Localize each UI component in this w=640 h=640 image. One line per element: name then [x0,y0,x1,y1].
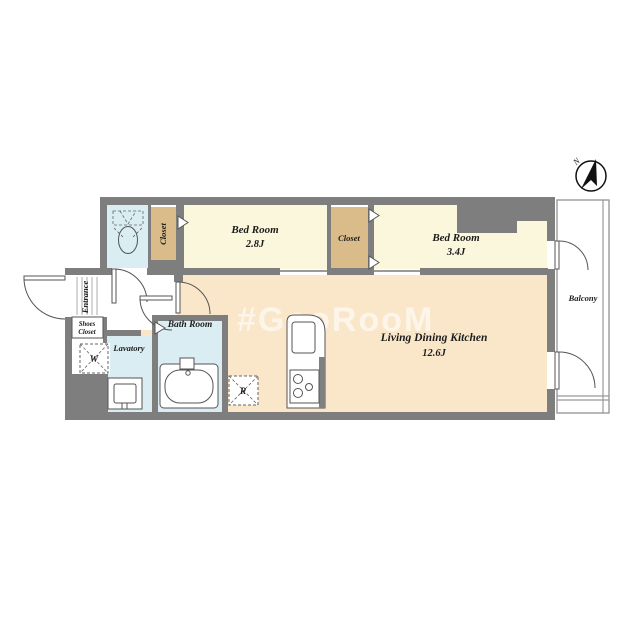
wall-mid-2 [147,268,280,275]
wall-top [100,197,555,205]
wall-mid-3 [327,268,374,275]
wall-sliver [103,317,107,343]
bath-label: Bath Room [167,320,213,330]
closet1-label: Closet [158,223,168,245]
balcony-label: Balcony [568,293,598,303]
refrigerator-label: R [239,387,246,397]
wall-bath-ldk [222,321,228,412]
wall-mid-4 [420,268,548,275]
bedroom2-balcony-door-leaf [555,241,559,269]
wall-left-upper [100,197,107,268]
bedroom1-name-label: Bed Room [230,224,279,236]
wall-lav-bath [152,321,158,412]
wall-toilet-closet [148,205,151,268]
bedroom1-size-label: 2.8J [245,239,265,250]
wall-bottom [65,412,555,420]
wall-right-3 [547,389,555,420]
wall-under-closet1 [151,260,176,268]
balcony [557,200,609,413]
entrance-label: Entrance [80,280,90,314]
wall-closet1-bed1 [176,205,184,268]
floor-plan: #GooRooM [0,0,640,640]
wall-right-2 [547,269,555,352]
lavatory-door-leaf [140,296,172,300]
bedroom2-name-label: Bed Room [431,232,480,244]
toilet-door-leaf [112,269,116,303]
shoes-closet-label-2: Closet [78,329,96,336]
wall-bed1-closet2 [327,205,331,268]
washer-label: W [90,355,99,365]
wall-notch-1 [457,205,517,233]
wall-left-stub [65,268,72,275]
bathtub-icon [160,358,218,408]
lavatory-label: Lavatory [112,343,144,353]
room-toilet-floor [107,205,148,268]
wall-corner-block [65,374,108,412]
stove-icon [290,370,319,403]
entry-door-leaf [24,276,65,280]
sink-icon [108,378,142,409]
wall-mid-1 [100,268,112,275]
counter-edge [319,357,325,408]
closet2-label: Closet [338,233,360,243]
kitchen-counter [287,315,325,408]
wall-right-1 [547,197,555,241]
ldk-size-label: 12.6J [422,348,446,359]
wall-hall-door-stub [174,268,183,282]
wall-notch-2 [517,205,547,221]
bedroom2-size-label: 3.4J [446,247,466,258]
hall-ldk-door-leaf [176,282,180,313]
floor-plan-page: #GooRooM [0,0,640,640]
ldk-balcony-door-leaf [555,352,559,389]
room-bedroom1-floor [184,205,327,269]
ldk-name-label: Living Dining Kitchen [380,332,488,344]
shoes-closet-label-1: Shoes [79,321,96,328]
